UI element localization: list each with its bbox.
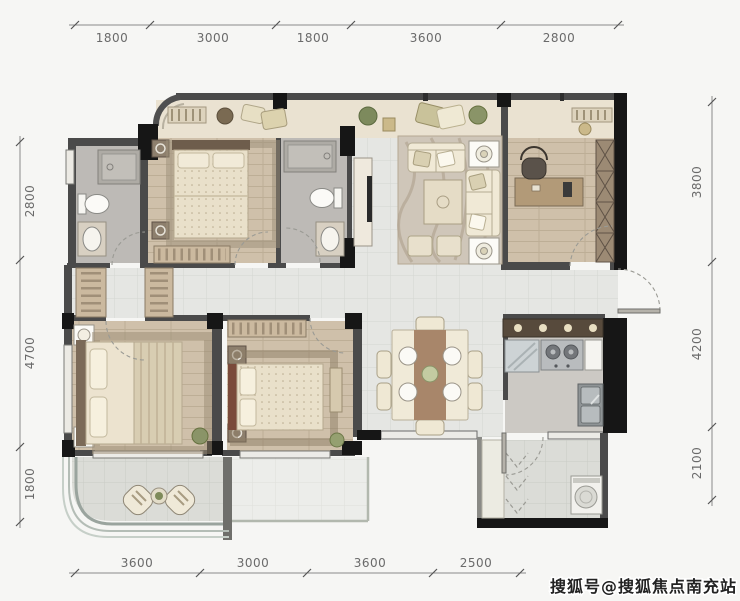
dining-chair: [377, 351, 391, 378]
bed-headboard: [228, 364, 237, 430]
pillow: [240, 399, 256, 426]
mug: [579, 123, 591, 135]
dim-label: 3600: [410, 31, 443, 45]
dim-label: 4200: [690, 328, 704, 361]
bed2-dining-divider-wall: [353, 315, 362, 437]
floor-plan-page: 1800 3000 1800 3600 2800 2800 4700 1800 …: [0, 0, 740, 601]
tv: [367, 176, 372, 222]
balcony-side-wall: [223, 457, 232, 540]
bench-runner: [572, 108, 612, 122]
dining-chair: [468, 351, 482, 378]
dining-chair: [468, 383, 482, 410]
utility-bottom-black-wall: [477, 518, 608, 528]
bedroom2-window: [240, 451, 330, 458]
dining-furniture: [377, 317, 482, 435]
dimensions-bottom: 3600 3000 3600 2500: [69, 556, 526, 577]
plant: [330, 433, 344, 447]
dim-label: 3600: [121, 556, 154, 570]
floor-plan-canvas: 1800 3000 1800 3600 2800 2800 4700 1800 …: [0, 0, 740, 601]
coffee-table: [424, 180, 462, 224]
dim-label: 2800: [23, 185, 37, 218]
plant: [359, 107, 377, 125]
desk: [515, 178, 583, 206]
bath1-bed1-divider-wall: [140, 141, 148, 268]
balcony-floor: [72, 457, 223, 521]
plate: [443, 347, 461, 365]
hallway-floor: [68, 268, 352, 318]
toilet-tank: [334, 188, 342, 208]
dim-label: 1800: [23, 468, 37, 501]
centerpiece: [422, 366, 438, 382]
laptop: [563, 182, 572, 197]
dim-label: 1800: [96, 31, 129, 45]
kitchen-door-leaf: [502, 433, 506, 473]
entry-hall-floor: [503, 270, 618, 318]
bath1-window: [66, 150, 74, 184]
utility-left-wall: [477, 437, 482, 523]
plate: [399, 347, 417, 365]
plate: [443, 383, 461, 401]
duct-shaft: [482, 440, 504, 518]
terrace-floor: [232, 457, 368, 521]
pillow: [437, 150, 456, 167]
pillow: [213, 153, 244, 168]
dim-label: 3800: [690, 166, 704, 199]
pillow: [90, 397, 107, 437]
dim-label: 2100: [690, 447, 704, 480]
pillow: [240, 368, 256, 395]
toilet: [310, 189, 334, 208]
pillow: [469, 214, 487, 231]
toilet: [85, 195, 109, 214]
dim-label: 1800: [297, 31, 330, 45]
pillow: [90, 349, 107, 389]
bed-headboard: [172, 140, 250, 150]
dim-label: 2800: [543, 31, 576, 45]
ottoman: [408, 236, 432, 256]
bookshelf: [596, 140, 614, 262]
dim-label: 3000: [197, 31, 230, 45]
plate: [399, 383, 417, 401]
watermark: 搜狐号@搜狐焦点南充站: [550, 577, 737, 596]
pillow: [413, 151, 431, 168]
outer-wall-top: [176, 93, 618, 100]
ottoman: [437, 236, 461, 256]
dining-chair: [377, 383, 391, 410]
office-chair: [522, 158, 546, 179]
dim-label: 4700: [23, 337, 37, 370]
pillow: [469, 173, 487, 190]
kitchen-window: [548, 432, 603, 439]
dim-label: 3600: [354, 556, 387, 570]
plant: [192, 428, 208, 444]
pillow: [261, 108, 288, 130]
plant: [155, 492, 163, 500]
counter-block: [585, 340, 602, 370]
dimensions-top: 1800 3000 1800 3600 2800: [69, 21, 624, 45]
basket: [383, 118, 395, 131]
master-bed2-divider-wall: [212, 315, 222, 455]
entry-door-leaf: [618, 309, 660, 313]
bath1-top-wall: [68, 138, 142, 146]
study-right-black-wall: [614, 93, 627, 270]
bed-headboard: [76, 340, 86, 446]
outer-wall-left-hall: [64, 265, 72, 317]
plant: [469, 106, 487, 124]
dim-label: 3000: [237, 556, 270, 570]
master-window: [64, 345, 72, 433]
dim-label: 2500: [460, 556, 493, 570]
kitchen-right-black-wall: [603, 318, 627, 433]
bench: [330, 368, 342, 412]
dimensions-left: 2800 4700 1800: [16, 136, 37, 528]
pouf: [217, 108, 233, 124]
dimensions-right: 3800 4200 2100: [690, 96, 716, 506]
entry-door-swing: [618, 269, 660, 311]
dining-chair: [416, 420, 444, 435]
pillow: [178, 153, 209, 168]
